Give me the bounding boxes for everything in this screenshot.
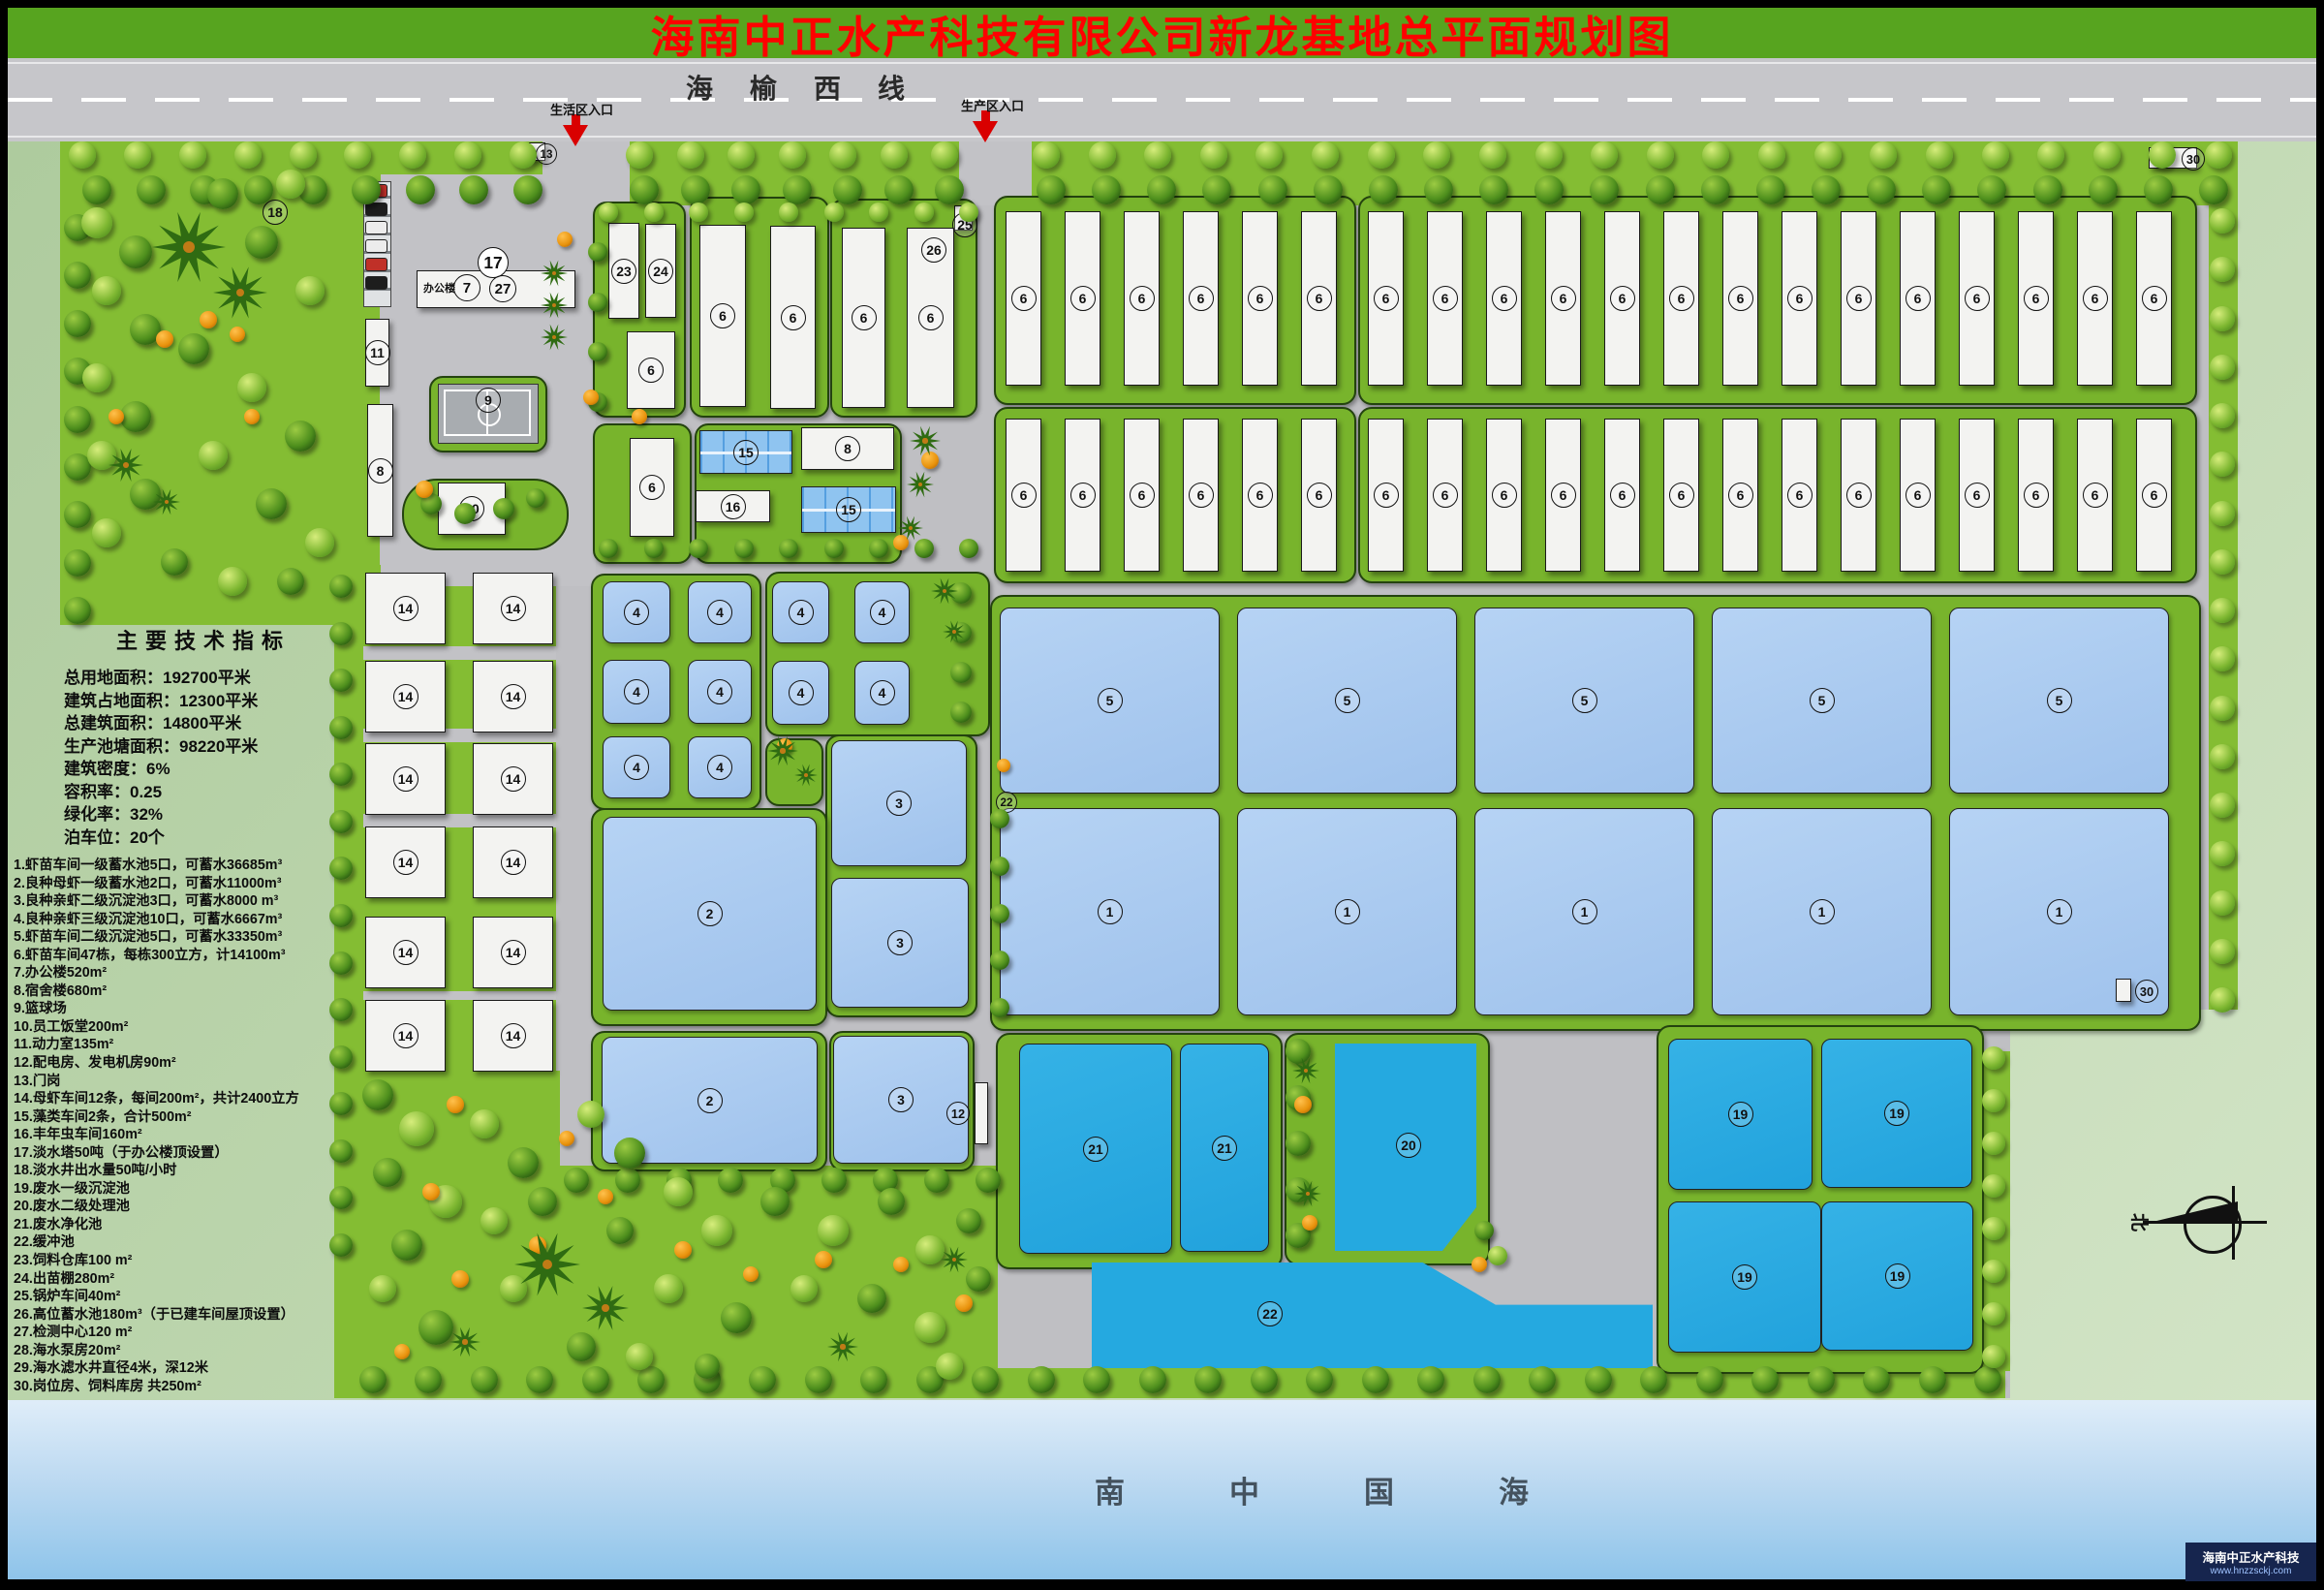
number-marker-6: 6 <box>1669 483 1694 508</box>
company-logo: 海南中正水产科技 www.hnzzsckj.com <box>2185 1543 2316 1581</box>
number-marker-6: 6 <box>1189 286 1214 311</box>
hedge-tree <box>734 539 754 558</box>
hedge-tree <box>1286 1039 1311 1064</box>
tree <box>218 567 247 596</box>
number-marker-6: 6 <box>638 358 664 383</box>
tree <box>277 568 304 595</box>
number-marker-6: 6 <box>918 305 944 330</box>
tree <box>818 1215 849 1246</box>
tree <box>936 1353 963 1380</box>
number-marker-11: 11 <box>365 340 390 365</box>
number-marker-23: 23 <box>611 259 636 284</box>
hedge-tree <box>2210 793 2235 818</box>
number-marker-6: 6 <box>781 305 806 330</box>
number-marker-3: 3 <box>887 930 913 955</box>
number-marker-6: 6 <box>2142 483 2167 508</box>
hedge-tree <box>1863 1366 1890 1393</box>
number-marker-14: 14 <box>393 684 418 709</box>
number-marker-14: 14 <box>393 596 418 621</box>
hedge-tree <box>1585 1366 1612 1393</box>
tree <box>454 503 476 524</box>
hedge-tree <box>1314 175 1343 204</box>
hedge-tree <box>1982 1345 2005 1368</box>
number-marker-6: 6 <box>2024 483 2049 508</box>
hedge-tree <box>2210 987 2235 1013</box>
hedge-tree <box>1312 141 1339 169</box>
tree <box>207 178 238 209</box>
number-marker-7: 7 <box>453 274 480 301</box>
orange-tree <box>955 1294 973 1312</box>
tree <box>120 401 151 432</box>
hedge-tree <box>1092 175 1121 204</box>
hedge-tree <box>406 175 435 204</box>
orange-tree <box>447 1096 464 1113</box>
legend-item: 16.丰年虫车间160m² <box>14 1126 299 1144</box>
indicators-title: 主要技术指标 <box>116 624 291 655</box>
hedge-tree <box>1647 141 1674 169</box>
number-marker-4: 4 <box>870 600 895 625</box>
hedge-tree <box>644 203 664 222</box>
orange-tree <box>394 1344 410 1359</box>
hedge-tree <box>689 539 708 558</box>
sea-area: 南中国海 <box>8 1400 2316 1579</box>
row-road <box>363 814 556 827</box>
tree <box>577 1101 604 1128</box>
entrance-arrow-icon <box>973 121 998 142</box>
legend-item: 6.虾苗车间47栋，每栋300立方，计14100m³ <box>14 947 299 965</box>
indicators-list: 总用地面积：192700平米建筑占地面积：12300平米总建筑面积：14800平… <box>64 667 258 849</box>
number-marker-13: 13 <box>536 143 557 165</box>
tree <box>526 488 545 508</box>
tree <box>245 226 278 259</box>
indicator-line: 生产池塘面积：98220平米 <box>64 735 258 759</box>
hedge-tree <box>914 203 934 222</box>
hedge-tree <box>2210 355 2235 380</box>
number-marker-15: 15 <box>836 497 861 522</box>
compass-line <box>2232 1186 2235 1260</box>
legend-item: 27.检测中心120 m² <box>14 1324 299 1342</box>
number-marker-6: 6 <box>1610 483 1635 508</box>
legend-item: 24.出苗棚280m² <box>14 1270 299 1289</box>
site-plan-canvas: 海南中正水产科技有限公司新龙基地总平面规划图 海榆西线 444444444433… <box>0 0 2324 1590</box>
number-marker-4: 4 <box>707 755 732 780</box>
hedge-tree <box>1982 1260 2005 1283</box>
number-marker-6: 6 <box>1374 483 1399 508</box>
tree <box>614 1138 645 1169</box>
hedge-tree <box>1417 1366 1444 1393</box>
orange-tree <box>230 327 245 342</box>
number-marker-6: 6 <box>1846 286 1872 311</box>
number-marker-6: 6 <box>1070 286 1096 311</box>
orange-tree <box>893 1257 909 1272</box>
legend-item: 19.废水一级沉淀池 <box>14 1180 299 1199</box>
hedge-tree <box>1812 175 1841 204</box>
pool-22 <box>1092 1263 1653 1368</box>
indicator-line: 建筑密度：6% <box>64 758 258 781</box>
tree <box>295 276 325 305</box>
indicator-line: 绿化率：32% <box>64 803 258 826</box>
hedge-tree <box>1926 141 1953 169</box>
tree <box>914 1312 945 1343</box>
number-marker-9: 9 <box>476 388 501 413</box>
legend-item: 17.淡水塔50吨（于办公楼顶设置） <box>14 1144 299 1163</box>
hedge-tree <box>959 539 978 558</box>
hedge-tree <box>881 141 908 169</box>
tree <box>399 1111 434 1146</box>
hedge-tree <box>2144 175 2173 204</box>
tree <box>92 518 121 547</box>
hedge-tree <box>1701 175 1730 204</box>
hedge-tree <box>1473 1366 1501 1393</box>
hedge-tree <box>471 1366 498 1393</box>
number-marker-2: 2 <box>697 1088 723 1113</box>
number-marker-6: 6 <box>1787 483 1813 508</box>
hedge-tree <box>2210 208 2235 234</box>
hedge-tree <box>329 575 353 598</box>
tree <box>956 1208 981 1233</box>
hedge-tree <box>833 175 862 204</box>
legend-item: 5.虾苗车间二级沉淀池5口，可蓄水33350m³ <box>14 928 299 947</box>
hedge-tree <box>1479 141 1506 169</box>
number-marker-6: 6 <box>1787 286 1813 311</box>
tree <box>199 441 228 470</box>
legend-item: 25.锅炉车间40m² <box>14 1288 299 1306</box>
hedge-tree <box>2210 744 2235 769</box>
tree <box>493 498 514 519</box>
hedge-tree <box>2210 549 2235 575</box>
number-marker-6: 6 <box>1551 286 1576 311</box>
hedge-tree <box>884 175 914 204</box>
number-marker-20: 20 <box>1396 1133 1421 1158</box>
hedge-tree <box>69 141 96 169</box>
hedge-tree <box>1814 141 1842 169</box>
number-marker-4: 4 <box>624 755 649 780</box>
number-marker-14: 14 <box>501 766 526 792</box>
tree <box>508 1147 539 1178</box>
hedge-tree <box>2210 306 2235 331</box>
parked-car <box>365 221 387 234</box>
hedge-tree <box>329 904 353 927</box>
tree <box>418 1310 453 1345</box>
hedge-tree <box>1479 175 1508 204</box>
office-building-label: 办公楼 <box>423 280 455 296</box>
hedge-tree <box>824 539 844 558</box>
hedge-tree <box>990 998 1009 1017</box>
legend-item: 20.废水二级处理池 <box>14 1198 299 1216</box>
number-marker-6: 6 <box>1846 483 1872 508</box>
hedge-tree <box>329 716 353 739</box>
number-marker-14: 14 <box>393 940 418 965</box>
tree <box>654 1274 683 1303</box>
number-marker-6: 6 <box>1965 483 1990 508</box>
tree <box>285 421 316 452</box>
hedge-tree <box>779 141 806 169</box>
hedge-tree <box>1037 175 1066 204</box>
hedge-tree <box>329 1139 353 1163</box>
sea-name-label: 南中国海 <box>1095 1468 1633 1512</box>
legend-item: 2.良种母虾一级蓄水池2口，可蓄水11000m³ <box>14 875 299 893</box>
number-marker-6: 6 <box>1189 483 1214 508</box>
hedge-tree <box>829 141 856 169</box>
hedge-tree <box>2210 696 2235 721</box>
number-marker-27: 27 <box>489 275 516 302</box>
number-marker-14: 14 <box>501 596 526 621</box>
hedge-tree <box>990 904 1009 923</box>
number-marker-1: 1 <box>1572 899 1597 924</box>
hedge-tree <box>824 203 844 222</box>
hedge-tree <box>329 810 353 833</box>
number-marker-6: 6 <box>1433 286 1458 311</box>
number-marker-12: 12 <box>946 1102 970 1125</box>
green-zone <box>334 1071 560 1398</box>
hedge-tree <box>1982 1046 2005 1070</box>
hedge-tree <box>2093 141 2121 169</box>
number-marker-17: 17 <box>478 247 509 278</box>
tree <box>915 1235 945 1264</box>
orange-tree <box>1472 1257 1487 1272</box>
number-marker-6: 6 <box>1965 286 1990 311</box>
indicator-line: 容积率：0.25 <box>64 781 258 804</box>
hedge-tree <box>2205 141 2232 169</box>
legend-item: 15.藻类车间2条，合计500m² <box>14 1108 299 1127</box>
orange-tree <box>815 1251 832 1268</box>
hedge-tree <box>1982 141 2009 169</box>
hedge-tree <box>2199 175 2228 204</box>
number-marker-6: 6 <box>1906 286 1931 311</box>
tree <box>373 1158 402 1187</box>
entrance-arrow-icon <box>563 125 588 146</box>
building <box>975 1082 988 1144</box>
hedge-tree <box>1251 1366 1278 1393</box>
number-marker-6: 6 <box>1248 483 1273 508</box>
number-marker-14: 14 <box>501 1023 526 1048</box>
legend-list: 1.虾苗车间一级蓄水池5口，可蓄水36685m³2.良种母虾一级蓄水池2口，可蓄… <box>14 857 299 1395</box>
number-marker-30: 30 <box>2135 980 2158 1003</box>
row-road <box>363 991 556 1000</box>
hedge-tree <box>124 141 151 169</box>
number-marker-14: 14 <box>501 940 526 965</box>
legend-item: 30.岗位房、饲料库房 共250m² <box>14 1378 299 1396</box>
number-marker-22: 22 <box>1257 1301 1283 1326</box>
orange-tree <box>559 1131 574 1146</box>
hedge-tree <box>1919 1366 1946 1393</box>
hedge-tree <box>924 1168 949 1193</box>
hedge-tree <box>234 141 262 169</box>
number-marker-1: 1 <box>1335 899 1360 924</box>
number-marker-24: 24 <box>648 259 673 284</box>
hedge-tree <box>689 203 708 222</box>
palm-tree-icon <box>907 471 934 498</box>
legend-item: 21.废水净化池 <box>14 1216 299 1234</box>
hedge-tree <box>1306 1366 1333 1393</box>
number-marker-4: 4 <box>870 680 895 705</box>
hedge-tree <box>914 539 934 558</box>
number-marker-6: 6 <box>1130 483 1155 508</box>
row-road <box>363 646 556 660</box>
legend-item: 3.良种亲虾二级沉淀池3口，可蓄水8000 m³ <box>14 892 299 911</box>
number-marker-5: 5 <box>1098 688 1123 713</box>
tree <box>237 373 266 402</box>
orange-tree <box>893 535 909 550</box>
hedge-tree <box>1756 175 1785 204</box>
legend-item: 4.良种亲虾三级沉淀池10口，可蓄水6667m³ <box>14 911 299 929</box>
orange-tree <box>108 409 124 424</box>
tree <box>161 548 188 576</box>
number-marker-19: 19 <box>1885 1263 1910 1289</box>
tree <box>276 170 305 199</box>
hedge-tree <box>783 175 812 204</box>
hedge-tree <box>1982 1174 2005 1198</box>
tree <box>178 333 209 364</box>
tree <box>391 1230 422 1261</box>
number-marker-6: 6 <box>1070 483 1096 508</box>
legend-item: 14.母虾车间12条，每间200m²，共计2400立方 <box>14 1090 299 1108</box>
hedge-tree <box>615 1168 640 1193</box>
orange-tree <box>743 1266 759 1282</box>
number-marker-6: 6 <box>2024 286 2049 311</box>
hedge-tree <box>513 175 542 204</box>
number-marker-6: 6 <box>1130 286 1155 311</box>
hedge-tree <box>1369 175 1398 204</box>
legend-item: 1.虾苗车间一级蓄水池5口，可蓄水36685m³ <box>14 857 299 875</box>
hedge-tree <box>1982 1089 2005 1112</box>
tree <box>878 1188 905 1215</box>
orange-tree <box>921 452 939 469</box>
hedge-tree <box>950 701 972 723</box>
hedge-tree <box>626 141 653 169</box>
hedge-tree <box>1200 141 1227 169</box>
parked-car <box>365 276 387 290</box>
hedge-tree <box>779 203 798 222</box>
hedge-tree <box>329 1045 353 1069</box>
tree <box>790 1275 818 1302</box>
parked-car <box>365 239 387 253</box>
hedge-tree <box>1696 1366 1723 1393</box>
indicator-line: 建筑占地面积：12300平米 <box>64 690 258 713</box>
number-marker-6: 6 <box>1906 483 1931 508</box>
number-marker-5: 5 <box>1572 688 1597 713</box>
tree <box>305 528 334 557</box>
number-marker-19: 19 <box>1884 1101 1909 1126</box>
number-marker-6: 6 <box>1610 286 1635 311</box>
hedge-tree <box>1286 1131 1311 1156</box>
legend-item: 18.淡水井出水量50吨/小时 <box>14 1162 299 1180</box>
parked-car <box>365 258 387 271</box>
number-marker-6: 6 <box>1728 483 1753 508</box>
tree <box>470 1109 499 1138</box>
hedge-tree <box>2037 141 2064 169</box>
hedge-tree <box>2210 890 2235 916</box>
tree <box>567 1332 596 1361</box>
number-marker-15: 15 <box>733 440 759 465</box>
compass-north-arrow-icon: 北 <box>2143 1192 2269 1256</box>
hedge-tree <box>329 1233 353 1257</box>
hedge-tree <box>64 597 91 624</box>
orange-tree <box>451 1270 469 1288</box>
tree <box>82 363 111 392</box>
orange-tree <box>422 1183 440 1200</box>
hedge-tree <box>1033 141 1060 169</box>
hedge-tree <box>931 141 958 169</box>
hedge-tree <box>1867 175 1896 204</box>
hedge-tree <box>805 1366 832 1393</box>
number-marker-6: 6 <box>1307 286 1332 311</box>
orange-tree <box>156 330 173 348</box>
tree <box>130 479 161 510</box>
number-marker-21: 21 <box>1083 1137 1108 1162</box>
hedge-tree <box>1646 175 1675 204</box>
hedge-tree <box>644 539 664 558</box>
hedge-tree <box>1751 1366 1779 1393</box>
number-marker-5: 5 <box>1810 688 1835 713</box>
number-marker-6: 6 <box>1307 483 1332 508</box>
legend-item: 12.配电房、发电机房90m² <box>14 1054 299 1073</box>
hedge-tree <box>1258 175 1287 204</box>
hedge-tree <box>244 175 273 204</box>
number-marker-6: 6 <box>1374 286 1399 311</box>
number-marker-14: 14 <box>501 850 526 875</box>
hedge-tree <box>329 622 353 645</box>
tree <box>480 1207 508 1234</box>
number-marker-6: 6 <box>1669 286 1694 311</box>
tree <box>626 1343 653 1370</box>
orange-tree <box>674 1241 692 1259</box>
hedge-tree <box>588 242 607 262</box>
number-marker-5: 5 <box>2047 688 2072 713</box>
hedge-tree <box>179 141 206 169</box>
tree <box>760 1187 790 1216</box>
number-marker-1: 1 <box>2047 899 2072 924</box>
legend-item: 28.海水泵房20m² <box>14 1342 299 1360</box>
number-marker-19: 19 <box>1728 1102 1753 1127</box>
life-entrance-label: 生活区入口 <box>550 100 613 118</box>
hedge-tree <box>2033 175 2062 204</box>
tree <box>362 1079 393 1110</box>
orange-tree <box>1302 1215 1317 1231</box>
parcel-block <box>1358 407 2197 583</box>
hedge-tree <box>935 175 964 204</box>
hedge-tree <box>2210 598 2235 623</box>
number-marker-5: 5 <box>1335 688 1360 713</box>
hedge-tree <box>1139 1366 1166 1393</box>
tree <box>1488 1246 1507 1265</box>
hedge-tree <box>1974 1366 2001 1393</box>
hedge-tree <box>1529 1366 1556 1393</box>
hedge-tree <box>329 669 353 692</box>
orange-tree <box>416 481 433 498</box>
hedge-tree <box>950 582 972 604</box>
hedge-tree <box>1089 141 1116 169</box>
legend-item: 22.缓冲池 <box>14 1233 299 1252</box>
tree <box>606 1217 634 1244</box>
number-marker-26: 26 <box>921 237 946 263</box>
hedge-tree <box>1028 1366 1055 1393</box>
hedge-tree <box>64 549 91 577</box>
number-marker-8: 8 <box>835 436 860 461</box>
hedge-tree <box>64 406 91 433</box>
number-marker-19: 19 <box>1732 1264 1757 1290</box>
orange-tree <box>583 390 599 405</box>
indicator-line: 总建筑面积：14800平米 <box>64 712 258 735</box>
parked-car <box>365 203 387 216</box>
hedge-tree <box>564 1168 589 1193</box>
number-marker-6: 6 <box>1433 483 1458 508</box>
orange-tree <box>244 409 260 424</box>
number-marker-6: 6 <box>852 305 877 330</box>
hedge-tree <box>1362 1366 1389 1393</box>
number-marker-6: 6 <box>2142 286 2167 311</box>
hedge-tree <box>1424 175 1453 204</box>
